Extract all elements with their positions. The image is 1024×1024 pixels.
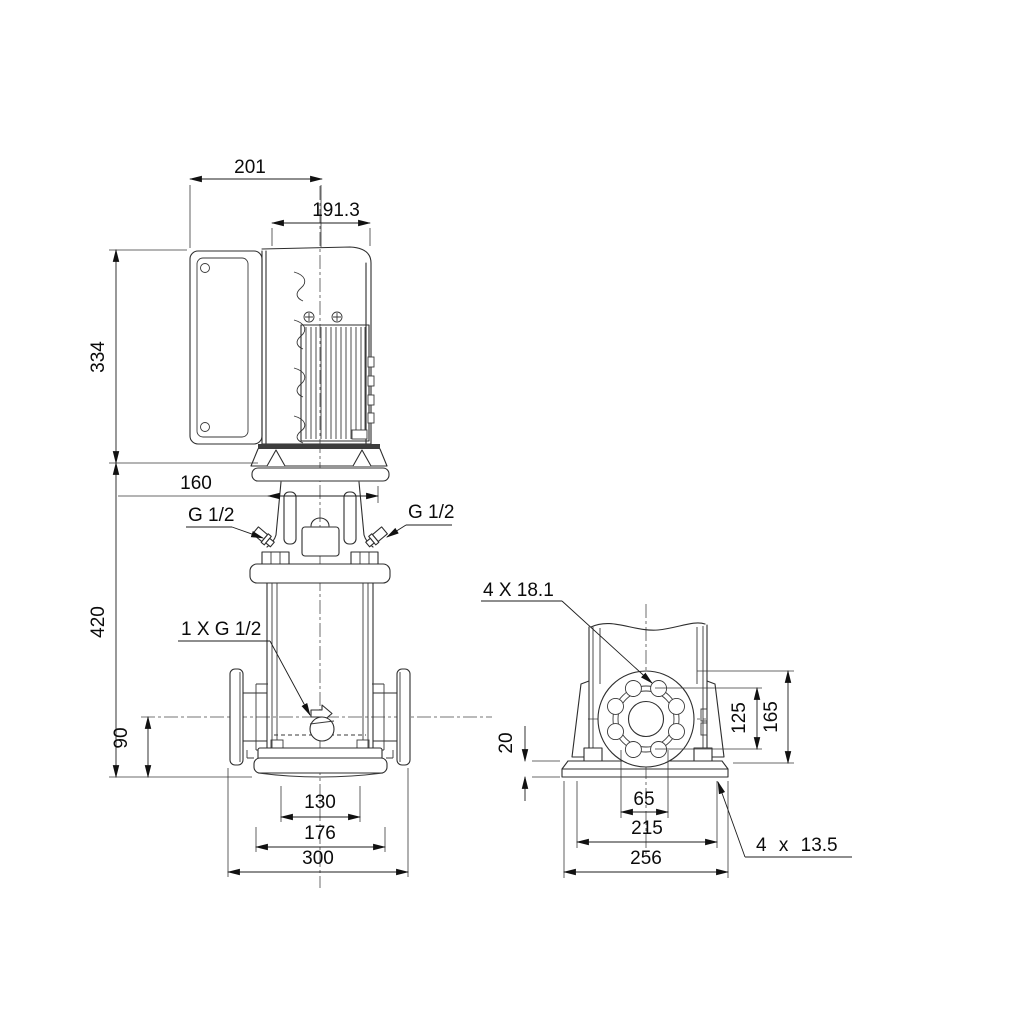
coupling-guard-slot — [284, 492, 296, 544]
dim-65-label: 65 — [633, 789, 654, 810]
dim-334-label: 334 — [88, 341, 109, 373]
pump-base — [254, 748, 387, 777]
drain-text: 1 X G 1/2 — [181, 619, 261, 640]
dim-motor-depth-201: 201 — [190, 157, 322, 248]
side-view: 20 125 165 65 215 256 4 X 18 — [481, 580, 852, 878]
dim-plate-thickness-20: 20 — [496, 726, 560, 801]
side-clip — [701, 723, 707, 735]
dim-300-label: 300 — [302, 848, 334, 869]
dim-256-label: 256 — [630, 848, 662, 869]
pump-dimensional-drawing: 201 191.3 334 420 160 90 13 — [0, 0, 1024, 1024]
dim-201-label: 201 — [234, 157, 266, 178]
dim-176-label: 176 — [304, 823, 336, 844]
dim-base-inner-130: 130 — [281, 786, 360, 822]
drain-plug — [310, 705, 334, 741]
motor-body — [262, 247, 371, 444]
dim-port-height-90: 90 — [111, 717, 148, 777]
drain-label: 1 X G 1/2 — [178, 619, 310, 715]
front-view: 201 191.3 334 420 160 90 13 — [88, 157, 492, 888]
dim-90-label: 90 — [111, 727, 132, 748]
coupling-guard-slot — [344, 492, 356, 544]
flange-holes-text: 4 X 18.1 — [483, 580, 554, 601]
terminal-box — [190, 251, 262, 444]
motor-clips — [294, 272, 305, 443]
vent-plug-left — [252, 526, 276, 549]
flange-outer — [598, 671, 694, 767]
vent-right-text: G 1/2 — [408, 502, 454, 523]
heatsink-fins — [301, 325, 369, 441]
base-holes-label: 4 x 13.5 — [718, 782, 852, 857]
vent-left-text: G 1/2 — [188, 505, 234, 526]
dim-130-label: 130 — [304, 792, 336, 813]
dim-160-label: 160 — [180, 473, 212, 494]
fin-screws — [304, 312, 342, 322]
nameplate — [302, 527, 339, 556]
dim-215-label: 215 — [631, 818, 663, 839]
drawing-page: 201 191.3 334 420 160 90 13 — [0, 0, 1024, 1024]
motor-assembly — [190, 247, 374, 444]
vent-plug-right — [364, 526, 388, 549]
staybolt-nut — [351, 552, 378, 564]
staybolt-nut — [262, 552, 289, 564]
dim-191-3-label: 191.3 — [312, 200, 360, 221]
dim-165-label: 165 — [761, 701, 782, 733]
head-plate — [250, 564, 390, 583]
dim-20-label: 20 — [496, 732, 517, 753]
base-holes-text: 4 x 13.5 — [756, 835, 838, 856]
port-flange-face — [598, 671, 707, 767]
dim-420-label: 420 — [88, 606, 109, 638]
flange-holes-label: 4 X 18.1 — [481, 580, 652, 683]
vent-label-left: G 1/2 — [186, 505, 263, 538]
vent-label-right: G 1/2 — [387, 502, 454, 537]
dim-125-label: 125 — [729, 702, 750, 734]
